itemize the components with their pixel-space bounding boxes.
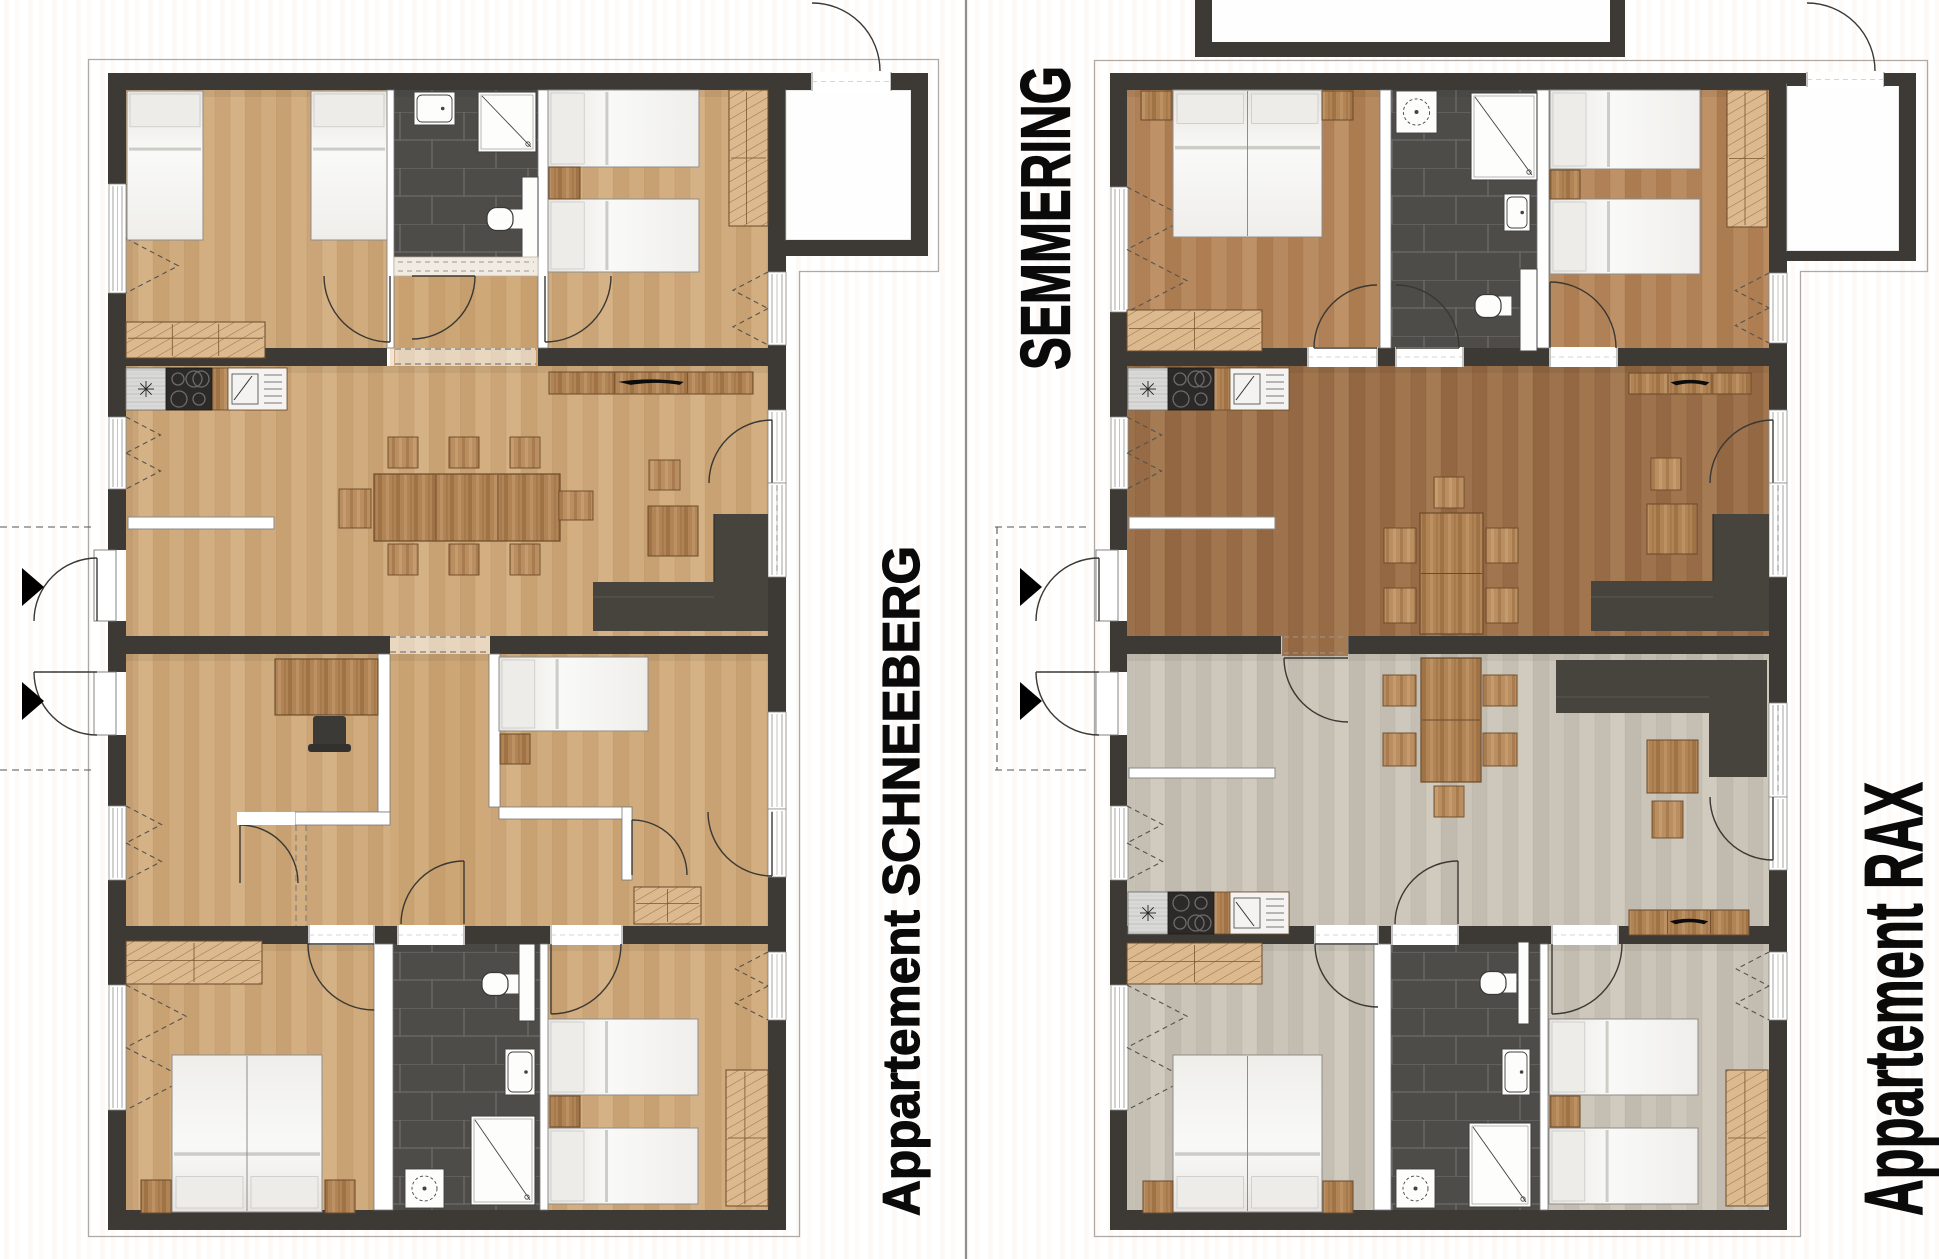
svg-text:Appartement SCHNEEBERG: Appartement SCHNEEBERG [873,546,931,1216]
svg-text:Appartement RAX: Appartement RAX [1847,782,1939,1216]
svg-text:SEMMERING: SEMMERING [1007,66,1085,370]
